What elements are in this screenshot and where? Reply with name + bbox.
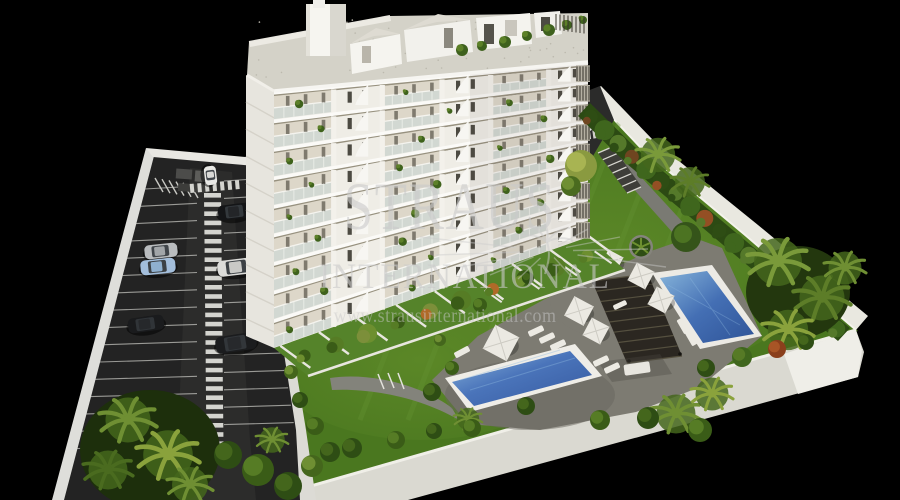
- svg-text:STRAUS: STRAUS: [344, 170, 557, 245]
- svg-text:www.strausinternational.com: www.strausinternational.com: [334, 305, 557, 327]
- svg-text:INTERNATIONAL: INTERNATIONAL: [319, 256, 611, 296]
